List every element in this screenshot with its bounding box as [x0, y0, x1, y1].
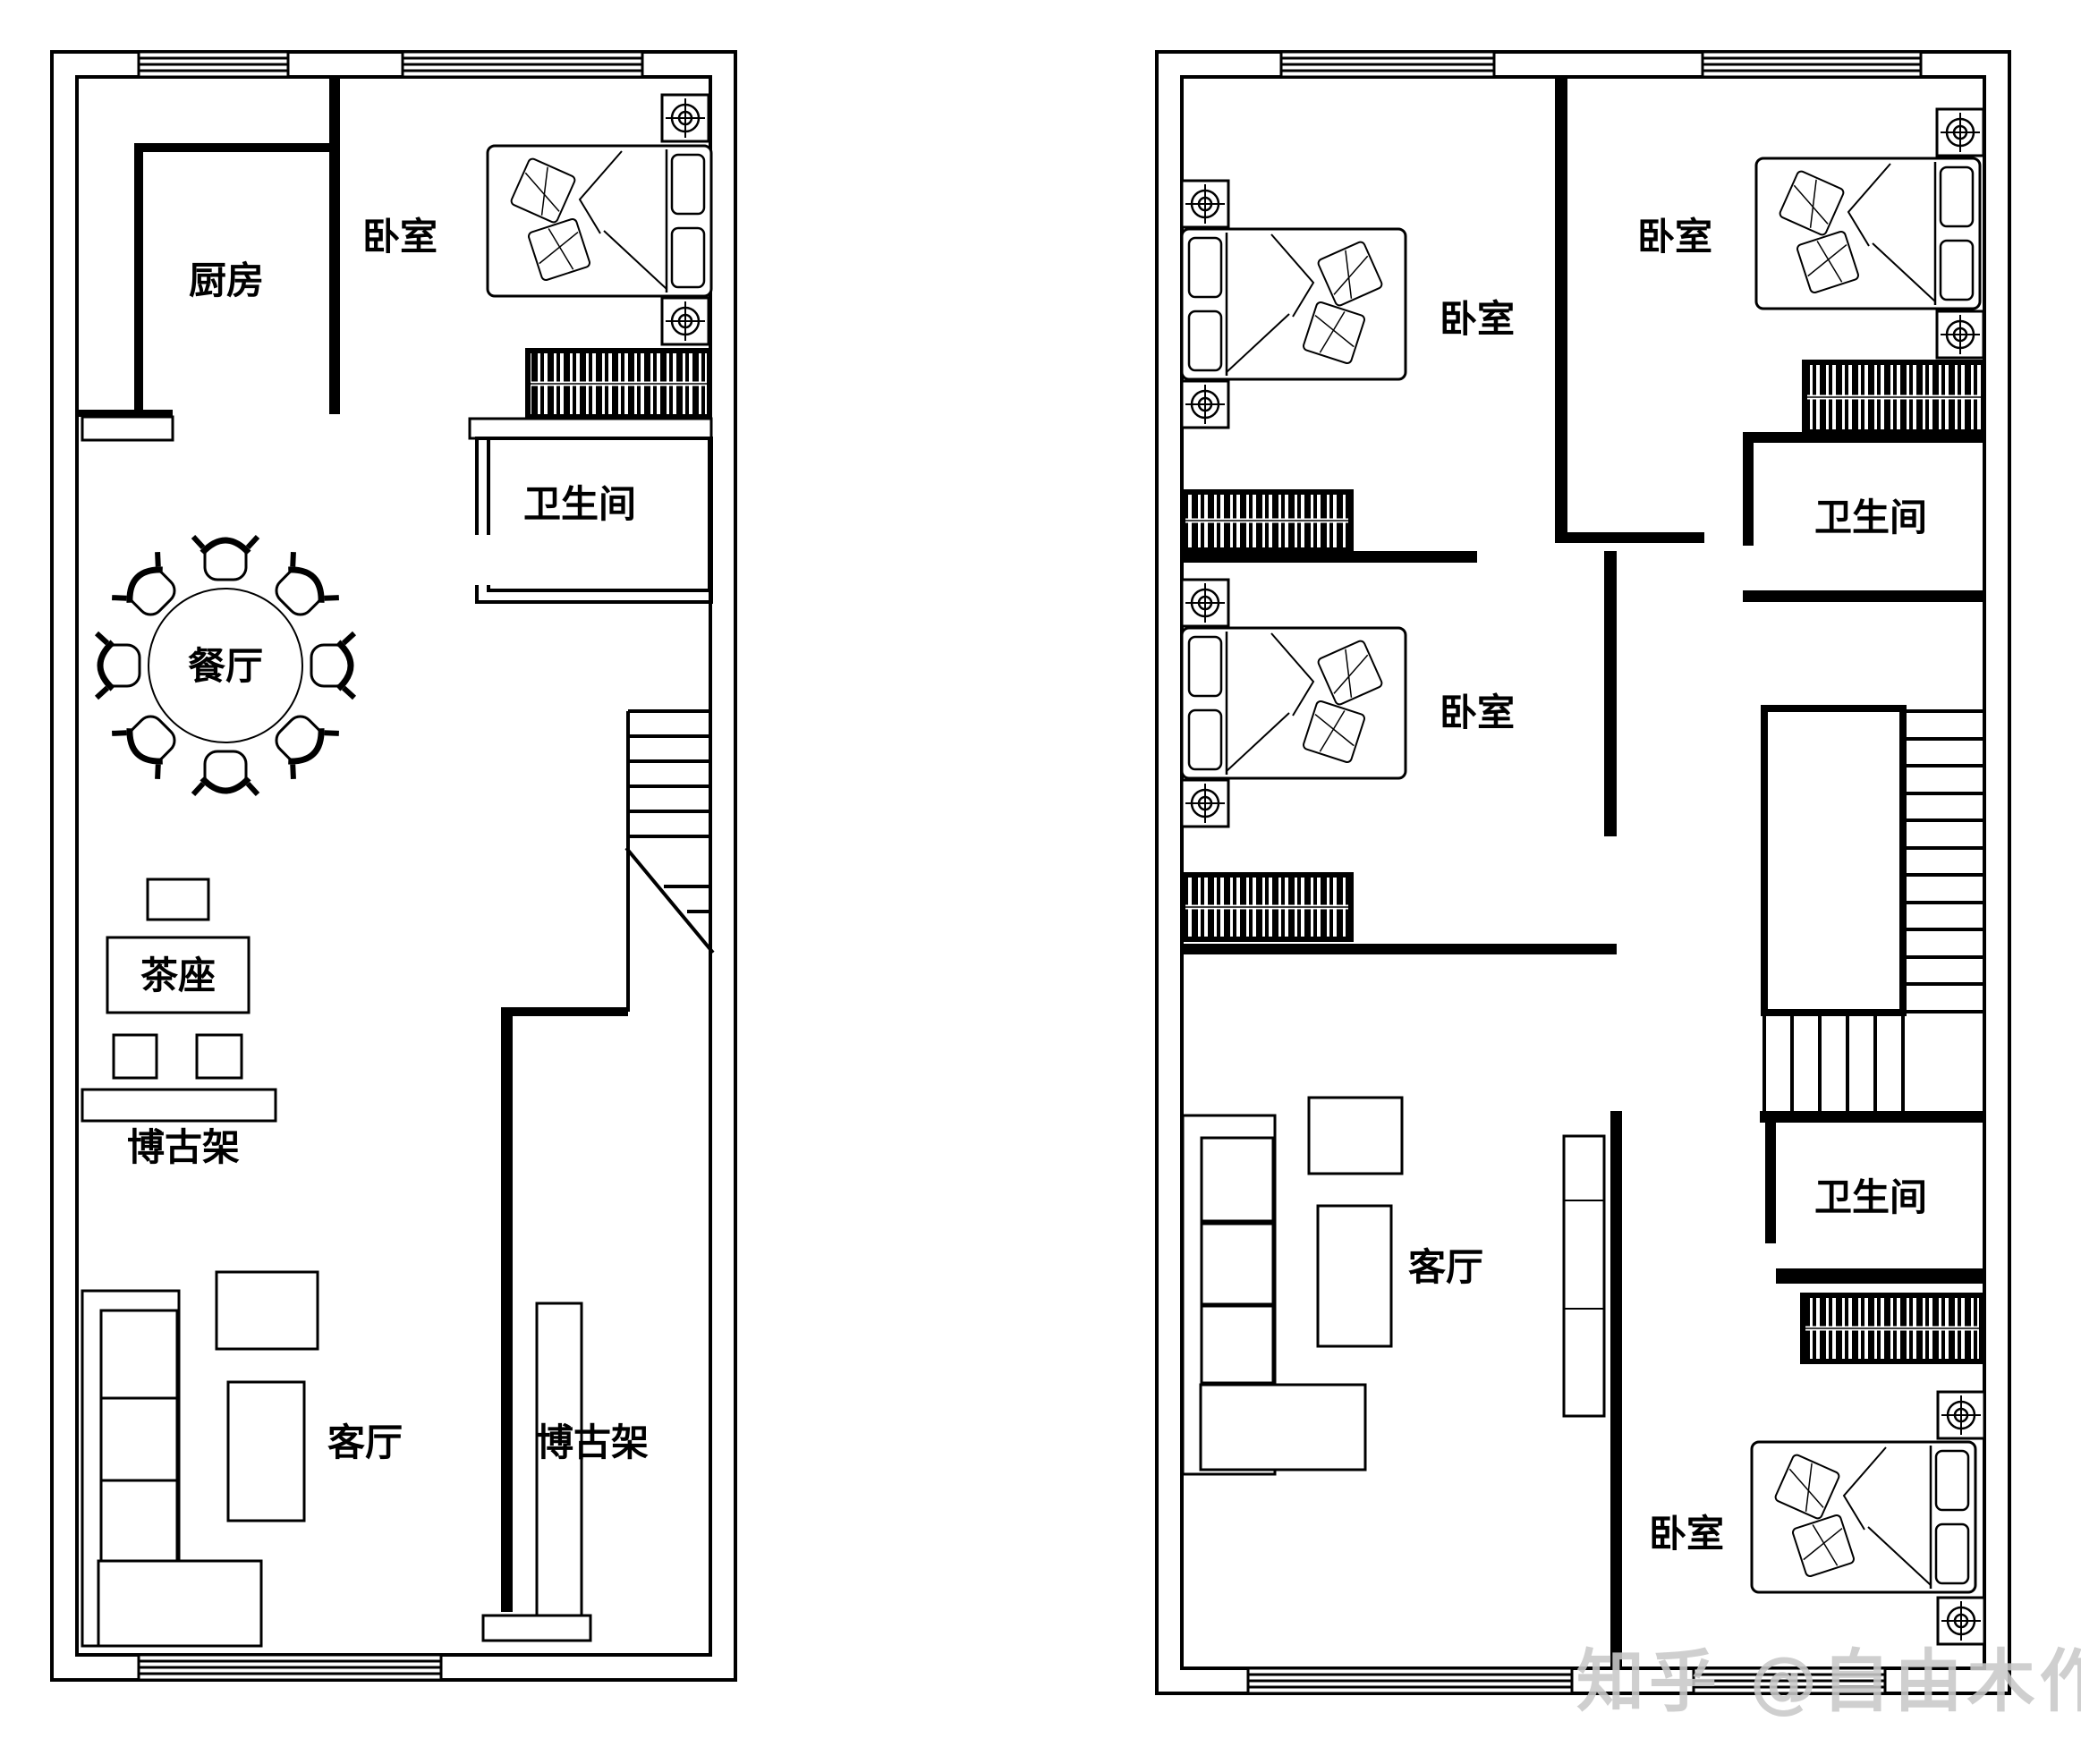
tv-cabinet	[1564, 1136, 1604, 1416]
watermark-text: 知乎 @自由木作	[1576, 1641, 2081, 1721]
nightstand	[1937, 109, 1983, 156]
coffee-table	[1318, 1206, 1391, 1346]
kitchen-bedroom-partition	[329, 77, 340, 414]
window	[1281, 52, 1494, 77]
wardrobe	[1803, 1295, 1982, 1361]
window	[139, 52, 288, 77]
nightstand	[662, 95, 709, 141]
tea-stool	[197, 1035, 242, 1078]
bathroom-wall	[1776, 1268, 1984, 1284]
dining-chair	[311, 633, 354, 698]
window	[139, 1655, 441, 1680]
floor-plan-drawing: 厨房 卧室 卫生间 餐厅 茶座 博古架 客厅 博古架	[0, 0, 2081, 1764]
corridor-wall	[501, 1007, 513, 1612]
side-table	[217, 1272, 318, 1349]
room-label-bathroom: 卫生间	[1814, 1175, 1927, 1219]
partition-wall	[1555, 77, 1567, 543]
kitchen-wall-top	[134, 143, 332, 152]
room-label-dining: 餐厅	[188, 644, 263, 688]
room-label-bedroom: 卧室	[1440, 297, 1515, 341]
floor-plan-canvas: 厨房 卧室 卫生间 餐厅 茶座 博古架 客厅 博古架	[0, 0, 2081, 1764]
room-label-bedroom: 卧室	[1649, 1512, 1724, 1556]
stairwell-opening	[1764, 708, 1903, 1013]
window	[1703, 52, 1921, 77]
wardrobe	[528, 351, 709, 417]
side-table	[1309, 1098, 1402, 1174]
kitchen-counter	[82, 417, 173, 440]
nightstand	[1938, 1392, 1984, 1438]
stair-break-line	[626, 848, 713, 953]
room-label-bedroom: 卧室	[362, 215, 437, 259]
bathroom-wall	[1765, 1123, 1776, 1243]
partition-wall	[1182, 944, 1617, 954]
display-shelf-column	[483, 1303, 590, 1641]
tea-stool	[114, 1035, 157, 1078]
bathroom-wall	[1743, 432, 1754, 546]
nightstand	[1182, 381, 1228, 428]
stairs	[626, 711, 713, 1012]
bed	[1182, 229, 1406, 379]
display-shelf	[82, 1090, 276, 1121]
dining-chair	[193, 537, 258, 580]
understair-wall	[501, 1007, 628, 1016]
nightstand	[1182, 181, 1228, 227]
room-label-kitchen: 厨房	[189, 259, 264, 302]
room-label-bathroom: 卫生间	[523, 482, 636, 526]
room-label-bedroom: 卧室	[1637, 215, 1712, 259]
bed	[1756, 158, 1980, 309]
partition-wall	[1555, 532, 1704, 543]
nightstand	[1937, 311, 1983, 358]
bathroom-wall	[1743, 590, 1984, 602]
room-label-shelf-column: 博古架	[536, 1421, 649, 1464]
nightstand	[1182, 780, 1228, 827]
partition-wall	[1610, 1111, 1622, 1668]
dining-chair	[193, 751, 258, 794]
bed	[1752, 1442, 1975, 1592]
understair-wall	[1760, 1111, 1984, 1123]
bathroom-door-opening	[472, 535, 493, 585]
room-label-bedroom: 卧室	[1440, 691, 1515, 734]
room-label-bathroom: 卫生间	[1814, 496, 1927, 539]
window	[1248, 1668, 1572, 1693]
tea-stool	[148, 879, 208, 920]
coffee-table	[228, 1382, 304, 1521]
kitchen-wall-left	[134, 143, 143, 413]
room-label-shelf: 博古架	[127, 1125, 240, 1169]
wardrobe	[1183, 875, 1351, 939]
first-floor-plan: 厨房 卧室 卫生间 餐厅 茶座 博古架 客厅 博古架	[52, 52, 735, 1680]
second-floor-plan: 卧室 卧室 卫生间 卧室 客厅 卫生间 卧室	[1157, 52, 2009, 1693]
window	[403, 52, 642, 77]
wardrobe	[1183, 492, 1351, 550]
nightstand	[1938, 1598, 1984, 1644]
bed	[1182, 628, 1406, 778]
dining-chair	[97, 633, 140, 698]
wardrobe	[1805, 362, 1983, 432]
room-label-living: 客厅	[327, 1421, 403, 1464]
room-label-living: 客厅	[1408, 1245, 1483, 1289]
nightstand	[662, 298, 709, 344]
nightstand	[1182, 580, 1228, 626]
room-label-tea-seat: 茶座	[140, 954, 216, 997]
stairs	[1764, 708, 1984, 1111]
partition-wall	[1604, 551, 1617, 836]
bed	[488, 146, 711, 296]
bathroom-shelf	[470, 419, 711, 438]
